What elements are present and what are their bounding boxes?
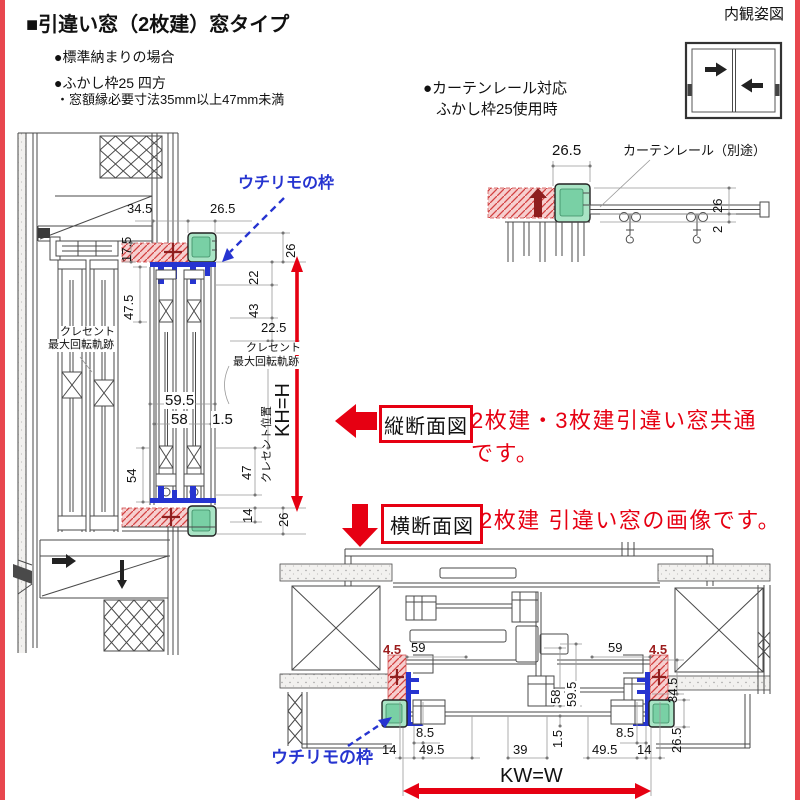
curtain-heading-line1: ●カーテンレール対応 [423, 80, 567, 97]
hs-dim-8-5-left: 8.5 [415, 726, 435, 741]
vs-dim-47: 47 [240, 466, 255, 480]
vs-crescent-right-line1: クレセント [245, 342, 302, 355]
vs-crescent-left-line1: クレセント [59, 326, 116, 339]
vs-dim-22-5: 22.5 [261, 321, 286, 336]
vs-dim-43: 43 [247, 304, 262, 318]
nail-icon [117, 560, 127, 589]
vs-uchirimo-label: ウチリモの枠 [238, 175, 334, 193]
vs-dim-1-5: 1.5 [211, 411, 234, 428]
hs-dim-39: 39 [513, 743, 527, 758]
hs-dim-4-5-right: 4.5 [649, 643, 667, 658]
curtain-heading-line2: ふかし枠25使用時 [436, 101, 558, 118]
hs-dim-26-5: 26.5 [670, 728, 685, 753]
horizontal-section-note: 2枚建 引違い窓の画像です。 [480, 508, 781, 533]
hs-dim-49-5-left: 49.5 [419, 743, 444, 758]
annotation-arrows [335, 404, 378, 547]
page-title: ■引違い窓（2枚建）窓タイプ [26, 14, 289, 37]
vs-kh-label: KH=H [272, 383, 295, 437]
vs-crescent-right-line2: 最大回転軌跡 [232, 356, 300, 369]
hs-dim-4-5-left: 4.5 [383, 643, 401, 658]
vs-dim-26-top: 26 [284, 244, 299, 258]
hs-dim-49-5-right: 49.5 [592, 743, 617, 758]
curtain-rail-label: カーテンレール（別途） [623, 144, 766, 159]
header-bullet-1: ●標準納まりの場合 [54, 49, 174, 65]
hs-dim-34-5: 34.5 [666, 678, 681, 703]
interior-view-diagram [686, 43, 781, 118]
header-note: ・窓額縁必要寸法35mm以上47mm未満 [56, 93, 284, 108]
page: { "header": { "title": "■引違い窓（2枚建）窓タイプ",… [0, 0, 800, 800]
curtain-dim-26: 26 [711, 199, 726, 213]
fukashi-frame-bottom [188, 506, 216, 536]
hs-kw-label: KW=W [500, 765, 563, 788]
horizontal-section-badge: 横断面図 [381, 504, 483, 544]
fukashi-frame-right [649, 700, 674, 727]
hs-dim-59-right: 59 [608, 641, 622, 656]
hs-dim-58: 58 [549, 689, 564, 705]
curtain-rail-drawing [488, 160, 769, 262]
vs-dim-26-bottom: 26 [277, 513, 292, 527]
curtain-dim-26-5: 26.5 [552, 142, 581, 159]
handle-right [776, 84, 780, 96]
vs-dim-22: 22 [247, 271, 262, 285]
vs-dim-47-5: 47.5 [122, 295, 137, 320]
curtain-runner [620, 213, 641, 244]
down-arrow-icon [342, 504, 378, 547]
fukashi-frame-top [188, 233, 217, 262]
header-bullet-2: ●ふかし枠25 四方 [54, 75, 166, 91]
left-arrow-icon [335, 404, 377, 438]
curtain-runner [687, 213, 708, 244]
hs-dim-59-5: 59.5 [565, 681, 580, 708]
handle-left [688, 84, 692, 96]
uchirimo-frame-bottom [150, 486, 216, 503]
kw-dimension-arrow [403, 728, 651, 799]
vertical-section-note-line2: です。 [471, 441, 539, 466]
interior-view-label: 内観姿図 [724, 6, 784, 23]
wall-hatch [488, 188, 554, 218]
hs-dim-14-right: 14 [637, 743, 651, 758]
hs-dim-14-left: 14 [382, 743, 396, 758]
vertical-section-badge: 縦断面図 [379, 405, 473, 443]
vertical-section-note-line1: 2枚建・3枚建引違い窓共通 [471, 408, 757, 433]
vs-dim-34-5: 34.5 [127, 202, 152, 217]
vertical-section-drawing [13, 133, 306, 655]
hs-dim-8-5-right: 8.5 [615, 726, 635, 741]
vs-dim-26-5: 26.5 [210, 202, 235, 217]
vs-dim-54: 54 [125, 469, 140, 483]
hs-dim-1-5: 1.5 [551, 730, 566, 748]
vs-dim-59-5: 59.5 [164, 392, 195, 409]
curtain-dim-2: 2 [711, 226, 726, 233]
vs-dim-58: 58 [170, 411, 189, 428]
hs-dim-59-left: 59 [411, 641, 425, 656]
vs-dim-17-5: 17.5 [120, 237, 135, 262]
hs-uchirimo-label: ウチリモの枠 [271, 748, 373, 768]
vs-crescent-left-line2: 最大回転軌跡 [47, 339, 115, 352]
vs-dim-14: 14 [241, 509, 256, 523]
